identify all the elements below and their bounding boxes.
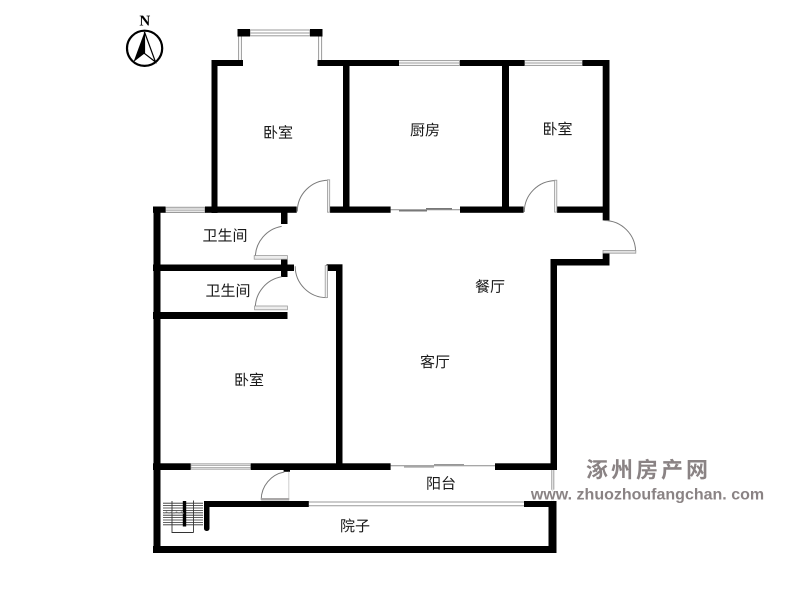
svg-text:www. zhuozhoufangchan. com: www. zhuozhoufangchan. com (530, 487, 764, 504)
